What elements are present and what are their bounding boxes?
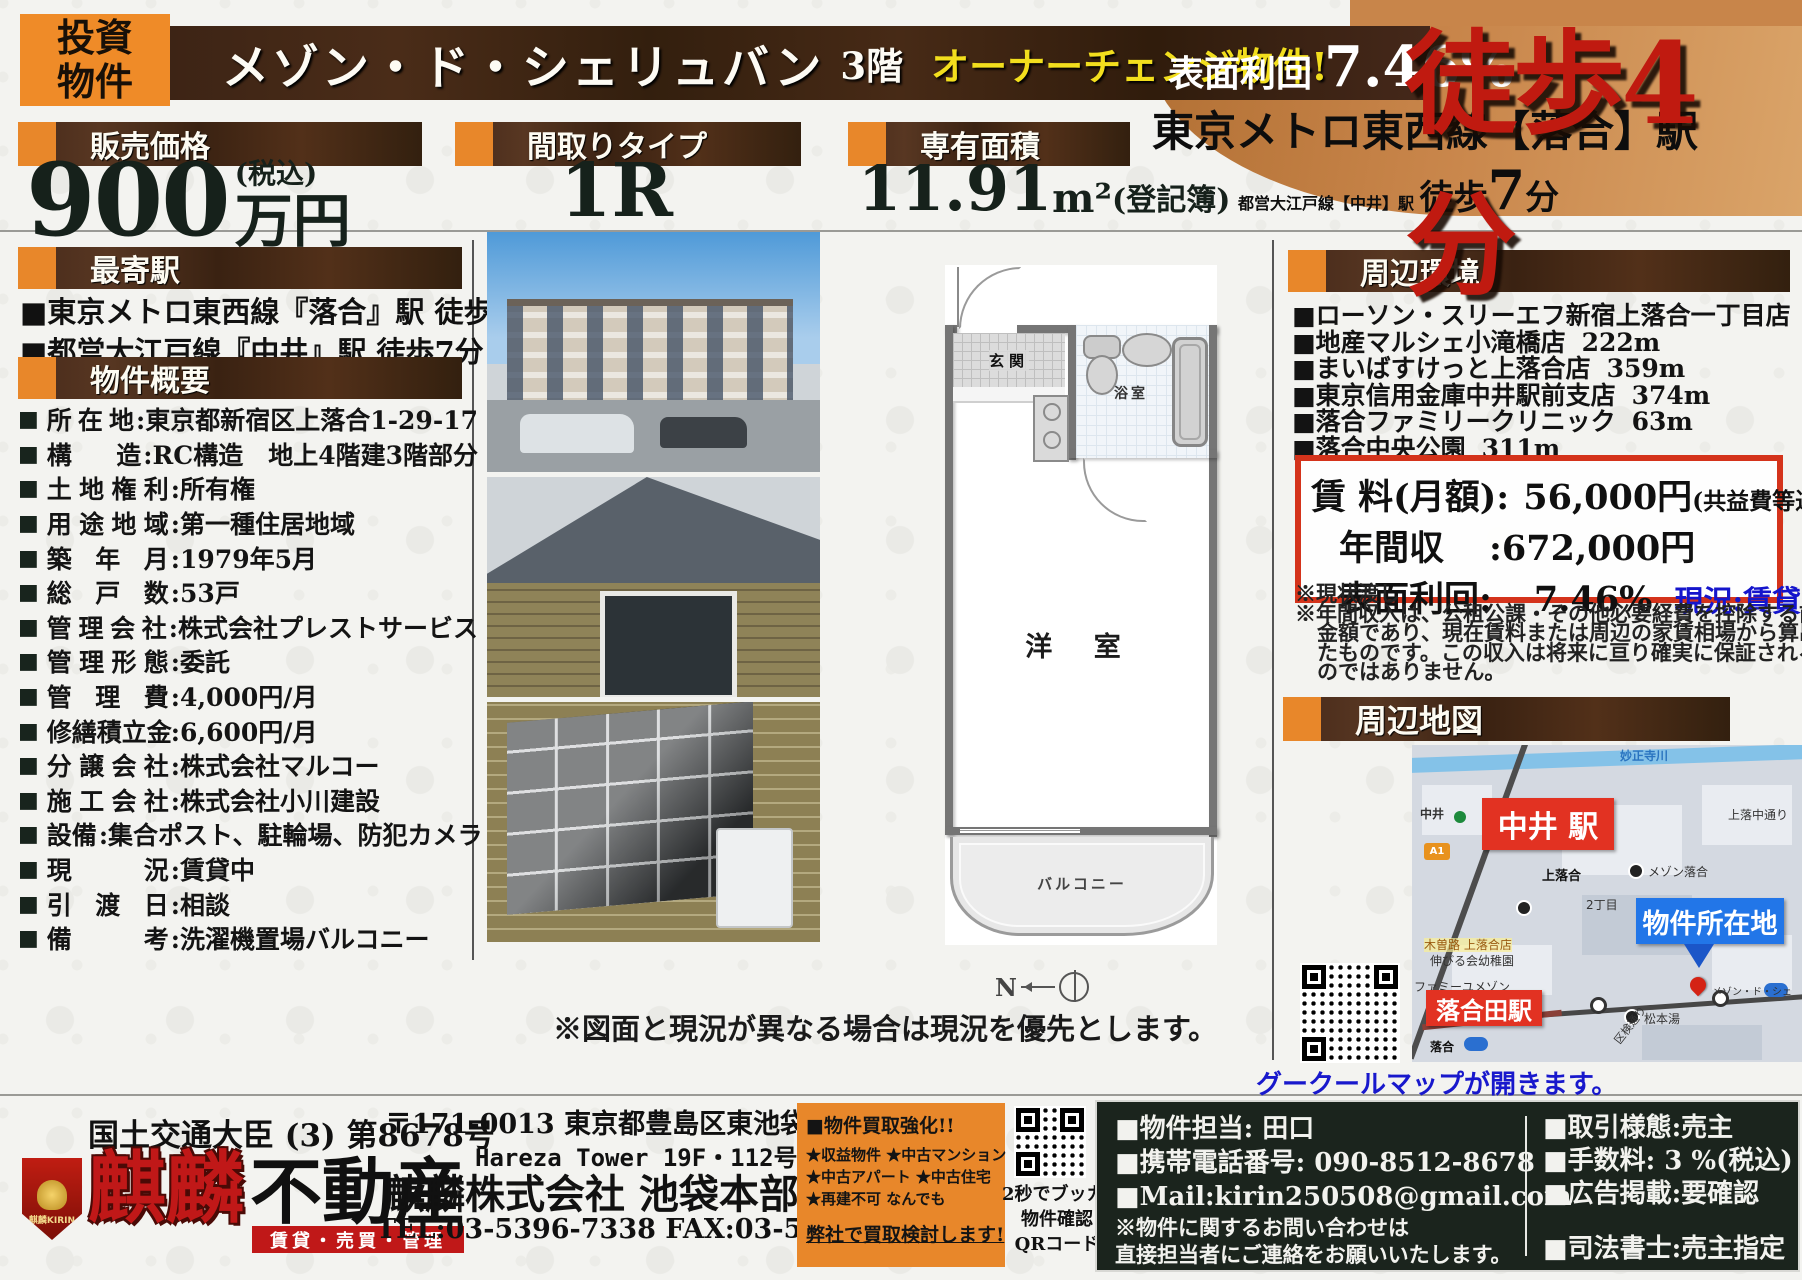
photo-building: [507, 299, 793, 412]
photo-car: [660, 417, 747, 448]
room-label: 洋 室: [945, 625, 1217, 664]
overview-row-label: 修繕積立金: [47, 713, 169, 749]
overview-row-value: :1979年5月: [171, 540, 317, 576]
compass-north-label: N: [995, 973, 1017, 1002]
area-unit: m²: [1052, 178, 1112, 220]
map-qr-code: [1300, 963, 1400, 1063]
overview-row: 総戸数 :53戸: [18, 575, 478, 610]
surroundings-item: ■まいばすけっと上落合店 359m: [1292, 349, 1792, 376]
map-river: [1412, 745, 1802, 773]
photo-car: [520, 414, 633, 452]
logo-kirin-text: 麒麟: [88, 1150, 244, 1228]
layout-value: 1R: [560, 148, 673, 234]
map-block: [1642, 1025, 1762, 1060]
annual-income-value: :672,000円: [1489, 520, 1695, 571]
overview-row: 築年月 :1979年5月: [18, 540, 478, 575]
orange-square: [18, 357, 56, 399]
area-value: 11.91 m² (登記簿): [858, 158, 1230, 220]
overview-row: 設備 :集合ポスト、駐輪場、防犯カメラ: [18, 817, 478, 852]
purchase-promo-title: ■物件買取強化!!: [806, 1111, 996, 1138]
surroundings-item: ■落合ファミリークリニック 63m: [1292, 402, 1792, 429]
overview-row-label: 管理費: [47, 678, 169, 714]
qr-finder: [1060, 1108, 1084, 1132]
facility-distance: 63m: [1632, 407, 1693, 436]
compass-arrow: [1021, 986, 1055, 988]
surroundings-item: ■東京信用金庫中井駅前支店 374m: [1292, 376, 1792, 403]
overview-row-label: 施工会社: [47, 782, 169, 818]
qr-finder: [1016, 1152, 1040, 1176]
bathroom-area: 浴室: [1076, 325, 1209, 458]
overview-row: 管理費 :4,000円/月: [18, 679, 478, 714]
terms-line: ■広告掲載:要確認: [1543, 1178, 1793, 1211]
overview-row-value: :第一種住居地域: [171, 505, 355, 541]
terms-line: ■手数料: 3 %(税込): [1543, 1145, 1793, 1178]
map-exit-a1-badge: A1: [1424, 843, 1450, 860]
orange-square: [455, 122, 493, 166]
nearest-station-bar: 最寄駅: [18, 247, 462, 289]
purchase-promo-box: ■物件買取強化!! ★収益物件 ★中古マンション★中古アパート ★中古住宅★再建…: [797, 1103, 1005, 1267]
overview-row-value: :株式会社プレストサービス: [169, 609, 478, 645]
overview-row: 構造 :RC構造 地上4階建3階部分: [18, 437, 478, 472]
facility-distance: 359m: [1607, 354, 1686, 383]
badge-line1: 投資: [57, 16, 133, 60]
facility-distance: 374m: [1632, 381, 1711, 410]
surroundings-list: ■ローソン・スリーエフ新宿上落合一丁目店 47m ■地産マルシェ小滝橋店 222…: [1292, 296, 1792, 455]
investment-badge: 投資 物件: [20, 14, 170, 106]
map-poi-label: メゾン落合: [1648, 863, 1708, 880]
contact-info: ■物件担当: 田口■携帯電話番号: 090-8512-8678■Mail:kir…: [1115, 1112, 1572, 1268]
overview-row: 施工会社 :株式会社小川建設: [18, 783, 478, 818]
rent-note: (共益費等込み): [1692, 482, 1802, 516]
overview-row-value: :東京都新宿区上落合1-29-17: [136, 401, 478, 437]
purchase-promo-line: ★収益物件 ★中古マンション: [806, 1144, 996, 1166]
overview-row-value: :RC構造 地上4階建3階部分: [143, 436, 478, 472]
area-note: (登記簿): [1112, 181, 1230, 220]
contact-line: ■物件担当: 田口: [1115, 1112, 1572, 1146]
rent-value: 56,000円: [1523, 469, 1692, 520]
contact-line: ※物件に関するお問い合わせは: [1115, 1214, 1572, 1241]
overview-row-label: 分譲会社: [47, 747, 169, 783]
overview-row: 管理形態 :委託: [18, 644, 478, 679]
map-title: 周辺地図: [1355, 696, 1483, 742]
balcony-area: バルコニー: [950, 837, 1214, 936]
bathroom-door-arc: [1083, 458, 1147, 522]
flyer: 投資 物件 メゾン・ド・シェリュバン 3階 オーナーチェンジ物件! 表面利回7.…: [0, 0, 1802, 1280]
sink: [1122, 333, 1172, 367]
overview-row: 引渡日 :相談: [18, 886, 478, 921]
overview-row: 分譲会社 :株式会社マルコー: [18, 748, 478, 783]
genkan-area: 玄関: [953, 333, 1065, 387]
purchase-promo-line: ★中古アパート ★中古住宅: [806, 1166, 996, 1188]
qr-finder: [1016, 1108, 1040, 1132]
overview-row-value: :株式会社マルコー: [171, 747, 380, 783]
overview-row-label: 用途地域: [47, 505, 169, 541]
photo-roof: [487, 477, 820, 598]
map-poi-dot: [1516, 900, 1532, 916]
kitchen-unit: [1033, 395, 1069, 462]
map-kisoji-label: 木曽路 上落合店: [1424, 938, 1512, 952]
overview-row-label: 引渡日: [47, 886, 169, 922]
purchase-promo-line: ★再建不可 なんでも: [806, 1188, 996, 1210]
overview-bar: 物件概要: [18, 357, 462, 399]
area-number: 11.91: [858, 158, 1052, 220]
price-tax-note: (税込): [235, 152, 318, 192]
contact-line: 直接担当者にご連絡をお願いいたします。: [1115, 1241, 1572, 1268]
nearest-station-item: ■東京メトロ東西線『落合』駅 徒歩4分: [20, 292, 470, 332]
wall: [1209, 325, 1217, 837]
nearest-station-title: 最寄駅: [90, 246, 180, 290]
transaction-terms: ■取引様態:売主■手数料: 3 %(税込)■広告掲載:要確認■司法書士:売主指定: [1543, 1112, 1793, 1266]
map-road-label: 上落中通り: [1728, 806, 1788, 823]
overview-row: 管理会社 :株式会社プレストサービス: [18, 610, 478, 645]
station-oedo-name: 都営大江戸線【中井】駅: [1238, 194, 1414, 213]
photo-entrance-door: [600, 591, 737, 697]
overview-row-value: :相談: [171, 886, 230, 922]
kirin-logo-shield: 麒麟KIRIN: [22, 1158, 82, 1240]
genkan-label: 玄関: [989, 350, 1029, 371]
compass-circle: [1059, 972, 1089, 1002]
property-title: メゾン・ド・シェリュバン: [222, 29, 824, 98]
burner: [1043, 403, 1061, 421]
terms-line: ■司法書士:売主指定: [1543, 1233, 1793, 1266]
qr-finder: [1302, 1037, 1326, 1061]
bathtub: [1172, 337, 1208, 447]
overview-row-label: 所在地: [47, 401, 134, 437]
entrance-door-arc: [959, 267, 1021, 329]
compass: N: [995, 972, 1089, 1002]
price-unit: 万円: [235, 192, 351, 250]
map-nakai-station-dot: [1454, 811, 1466, 823]
overview-row: 修繕積立金 :6,600円/月: [18, 713, 478, 748]
kitchen-sink: [1043, 431, 1061, 449]
map-ochiai-station-label: 落合田駅: [1426, 990, 1542, 1026]
overview-row-label: 現況: [47, 851, 169, 887]
terms-line: ■取引様態:売主: [1543, 1112, 1793, 1145]
price-number: 900: [26, 150, 229, 250]
orange-square: [1283, 697, 1321, 741]
overview-row-label: 土地権利: [47, 470, 169, 506]
facility-distance: 222m: [1582, 328, 1661, 357]
map-qr-caption: グークールマップが開きます。: [1256, 1064, 1617, 1101]
kirin-emblem: [37, 1180, 67, 1210]
contact-line: ■携帯電話番号: 090-8512-8678: [1115, 1146, 1572, 1180]
property-check-qr-code: [1014, 1106, 1086, 1178]
qr-finder: [1302, 965, 1326, 989]
map-kindergarten-label: 伸びる会幼稚園: [1430, 952, 1514, 969]
map-ochiai-small-label: 落合: [1430, 1038, 1454, 1055]
map-river-label: 妙正寺川: [1620, 747, 1668, 764]
company-name: 麒麟株式会社 池袋本部: [385, 1162, 799, 1220]
map-property-location-label: 物件所在地: [1636, 898, 1784, 944]
photo-white-post: [716, 828, 793, 928]
overview-row-value: :53戸: [171, 574, 240, 610]
overview-title: 物件概要: [90, 356, 210, 400]
orange-square: [1288, 250, 1326, 292]
overview-row-label: 管理形態: [47, 643, 169, 679]
overview-row: 備考 :洗濯機置場バルコニー: [18, 921, 478, 956]
map-poi-dot: [1628, 863, 1644, 879]
qr-finder: [1374, 965, 1398, 989]
property-floor: 3階: [840, 36, 903, 90]
map-line-badge: [1464, 1037, 1488, 1051]
overview-row-label: 設備: [47, 816, 97, 852]
map-chome-label: 2丁目: [1586, 896, 1618, 913]
overview-row-label: 構造: [47, 436, 142, 472]
overview-row-value: :集合ポスト、駐輪場、防犯カメラ: [99, 816, 483, 852]
door-leaf: [957, 267, 959, 327]
map-nakai-small-label: 中井: [1420, 805, 1444, 822]
area-map: 妙正寺川 中井 A1 中井 駅 上落中通り メゾン落合 上落合 2丁目 物件所在…: [1412, 745, 1802, 1062]
purchase-promo-cta: 弊社で買取検討します!: [806, 1220, 996, 1247]
overview-row-value: :所有権: [171, 470, 255, 506]
overview-row-value: :株式会社小川建設: [171, 782, 380, 818]
overview-row-label: 備考: [47, 920, 169, 956]
contact-box: ■物件担当: 田口■携帯電話番号: 090-8512-8678■Mail:kir…: [1095, 1100, 1800, 1272]
balcony-window: [960, 829, 1080, 833]
overview-row-value: :委託: [171, 643, 230, 679]
balcony-label: バルコニー: [953, 873, 1211, 894]
overview-table: 所在地 :東京都新宿区上落合1-29-17 構造 :RC構造 地上4階建3階部分…: [18, 402, 478, 956]
photo-building-exterior: [487, 232, 820, 472]
overview-row-label: 管理会社: [47, 609, 167, 645]
overview-row-value: :賃貸中: [171, 851, 255, 887]
wall: [1068, 325, 1076, 460]
bathroom-label: 浴室: [1114, 383, 1148, 403]
badge-line2: 物件: [57, 60, 133, 104]
map-district-label: 上落合: [1542, 865, 1581, 884]
map-bar: 周辺地図: [1283, 697, 1730, 741]
overview-row: 土地権利 :所有権: [18, 471, 478, 506]
income-notes: ※現状渡し※年間収入は、公租公課・その他必要経費を控除する前の金額であり、現在賃…: [1295, 584, 1795, 682]
overview-row: 所在地 :東京都新宿区上落合1-29-17: [18, 402, 478, 437]
kirin-badge-text: 麒麟KIRIN: [29, 1213, 75, 1226]
overview-row-value: :4,000円/月: [171, 678, 318, 714]
overview-row-value: :洗濯機置場バルコニー: [171, 920, 430, 956]
map-pin-note: メゾン・ド・シェ: [1712, 983, 1792, 998]
price-value: 900 (税込)万円: [26, 150, 351, 250]
rent-label: 賃 料(月額):: [1311, 469, 1509, 520]
photo-entrance: [487, 477, 820, 697]
map-nakai-station-label: 中井 駅: [1482, 798, 1614, 850]
overview-row-value: :6,600円/月: [171, 713, 318, 749]
wall: [945, 325, 953, 835]
divider-right-column: [1272, 240, 1274, 1060]
income-note-line: のではありません。: [1295, 662, 1795, 682]
walk-4min: 徒歩4分: [1405, 0, 1802, 318]
floor-plan: 玄関 浴室 洋 室 バルコニー: [945, 265, 1217, 945]
photo-mailboxes: [487, 702, 820, 942]
overview-row-label: 築年月: [47, 540, 169, 576]
plan-disclaimer: ※図面と現況が異なる場合は現況を優先とします。: [553, 1006, 1217, 1048]
overview-row: 用途地域 :第一種住居地域: [18, 506, 478, 541]
map-station-marker: [1590, 997, 1607, 1014]
purchase-promo-lines: ★収益物件 ★中古マンション★中古アパート ★中古住宅★再建不可 なんでも: [806, 1144, 996, 1210]
orange-square: [18, 247, 56, 289]
yield-label: 表面利回: [1168, 53, 1312, 95]
overview-row-label: 総戸数: [47, 574, 169, 610]
contact-line: ■Mail:kirin250508@gmail.com: [1115, 1180, 1572, 1214]
overview-row: 現況 :賃貸中: [18, 852, 478, 887]
annual-income-label: 年間収: [1339, 520, 1489, 571]
